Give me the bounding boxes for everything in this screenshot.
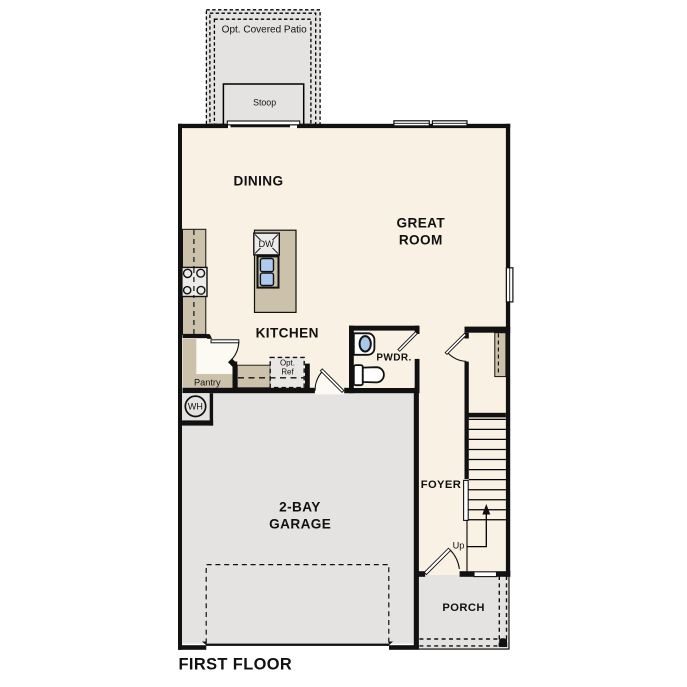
svg-text:DW: DW [258, 239, 274, 249]
svg-text:FIRST FLOOR: FIRST FLOOR [179, 656, 293, 674]
svg-text:Ref: Ref [281, 368, 294, 377]
svg-text:GARAGE: GARAGE [269, 517, 331, 532]
svg-text:Opt.: Opt. [280, 359, 295, 368]
svg-text:Pantry: Pantry [194, 378, 221, 388]
svg-text:PORCH: PORCH [442, 602, 484, 614]
svg-text:Up: Up [453, 541, 465, 551]
svg-text:Stoop: Stoop [253, 98, 276, 108]
svg-text:GREAT: GREAT [397, 215, 446, 230]
svg-text:ROOM: ROOM [399, 232, 443, 247]
svg-text:FOYER: FOYER [421, 479, 462, 491]
svg-text:KITCHEN: KITCHEN [256, 325, 319, 340]
svg-text:DINING: DINING [234, 174, 284, 189]
svg-text:Opt. Covered Patio: Opt. Covered Patio [222, 25, 307, 36]
svg-text:2-BAY: 2-BAY [279, 500, 321, 515]
svg-text:PWDR.: PWDR. [376, 353, 411, 364]
svg-text:WH: WH [188, 401, 203, 411]
